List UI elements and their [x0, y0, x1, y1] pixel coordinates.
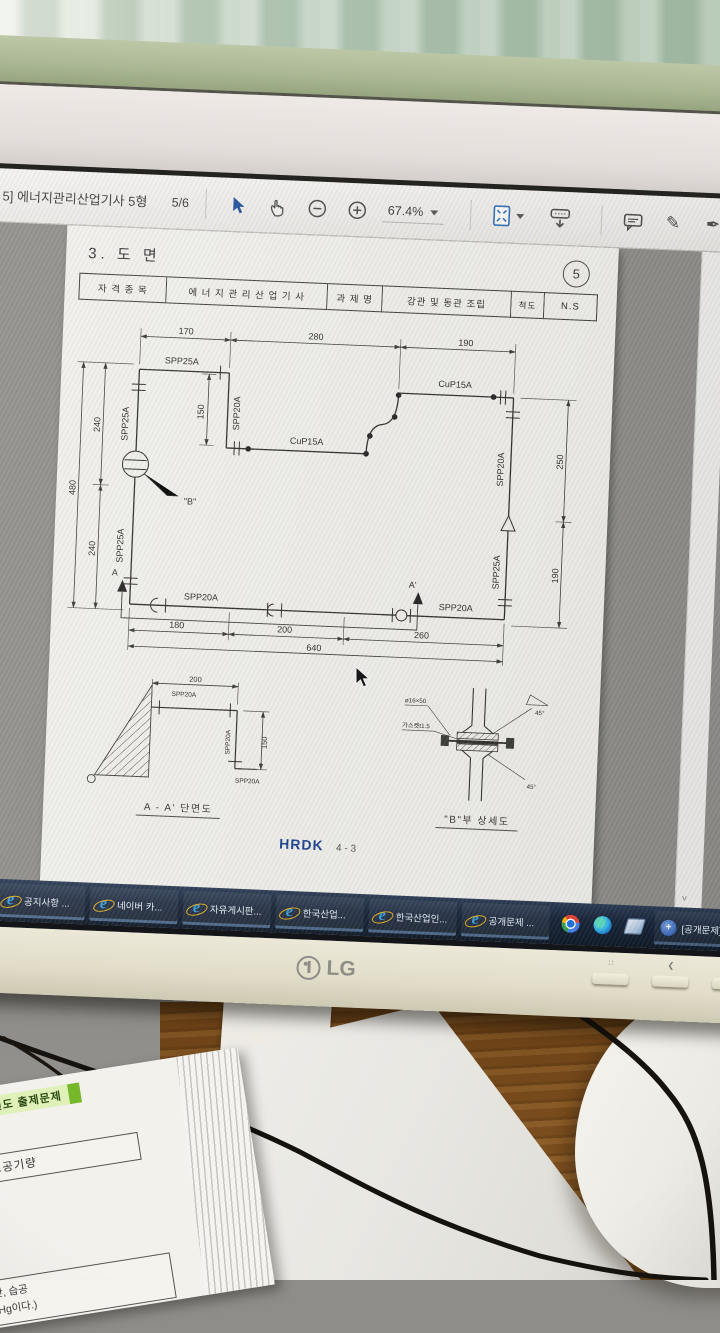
sign-icon[interactable]: ✒ [697, 209, 720, 240]
table-cell-label: 척도 [511, 291, 545, 319]
pipe-label: SPP25A [119, 406, 130, 440]
dim-label: 250 [555, 454, 566, 469]
pdf-document-title: 5] 에너지관리산업기사 5형 [2, 185, 158, 210]
chrome-icon[interactable] [561, 914, 580, 933]
pipe-label: SPP25A [491, 555, 502, 589]
hand-tool-icon[interactable] [261, 191, 292, 222]
chevron-right-icon: ❯ [713, 963, 720, 974]
pipe-label: SPP20A [171, 691, 197, 699]
dim-label: 150 [195, 404, 206, 419]
table-cell-value: 강관 및 동관 조립 [382, 285, 512, 317]
piping-diagram: 170 280 190 480 240 240 150 250 190 180 … [57, 311, 615, 683]
select-tool-icon[interactable] [221, 189, 252, 220]
pipe-label: SPP20A [235, 778, 261, 786]
toolbar-divider [600, 205, 602, 235]
pipe-label: SPP20A [439, 602, 473, 613]
dim-label: 260 [414, 630, 429, 641]
pipe-lines [149, 707, 259, 769]
taskbar-item-hrdk2[interactable]: e 한국산업인... [368, 898, 457, 936]
pipe-lines [130, 369, 515, 619]
pipe-label: SPP25A [114, 528, 125, 562]
detail-callout-label: "B" [184, 496, 197, 507]
table-cell-value: N.S [544, 292, 598, 321]
book-badge: 과년도 출제문제 [0, 1082, 82, 1119]
angle-label: 45° [535, 710, 545, 717]
internet-explorer-icon: e [95, 895, 113, 913]
monitor-right-button[interactable]: ❯ [712, 963, 720, 990]
pipe-label: CuP15A [290, 436, 324, 447]
drawing-page-number: 4 - 3 [336, 843, 356, 855]
scroll-down-icon[interactable]: ˅ [682, 893, 688, 903]
internet-explorer-icon: e [466, 911, 484, 929]
toolbar-divider [470, 199, 472, 229]
internet-explorer-icon: e [373, 907, 391, 925]
monitor-left-button[interactable]: ❮ [652, 960, 689, 987]
pipe-label: SPP20A [231, 396, 242, 430]
extension-lines [66, 326, 579, 669]
lg-brand-text: LG [326, 957, 356, 982]
drawing-footer: HRDK 4 - 3 [41, 826, 593, 867]
taskbar-item-label: 한국산업... [303, 906, 346, 922]
monitor-controls: ∷ ❮ ❯ ○ [592, 958, 720, 993]
lg-logo: LG [296, 955, 356, 981]
taskbar-item-label: 공지사항 ... [24, 894, 70, 910]
dim-label: 190 [458, 338, 473, 349]
dim-label: 190 [550, 568, 561, 583]
dimension-lines [149, 679, 270, 770]
internet-explorer-icon: e [188, 899, 206, 917]
pipe-fittings [116, 362, 521, 627]
internet-explorer-icon: e [280, 903, 298, 921]
section-label: A [112, 567, 118, 577]
chevron-down-icon [430, 210, 438, 215]
pipe-label: CuP15A [438, 379, 472, 390]
edge-icon[interactable] [593, 916, 612, 935]
lg-monitor: 5] 에너지관리산업기사 5형 5/6 67.4% [0, 33, 720, 1027]
highlight-icon[interactable]: ✎ [657, 207, 688, 238]
dim-label: 150 [260, 736, 270, 749]
zoom-level-dropdown[interactable]: 67.4% [381, 199, 444, 225]
flange-detail-b: ø16×50 가스켓t1.5 45° 45° "B"부 상세도 [387, 681, 573, 833]
page-indicator: 5/6 [171, 195, 189, 210]
dim-label: 170 [178, 326, 193, 337]
pipe-label: SPP25A [165, 355, 199, 366]
dim-label: 240 [92, 417, 103, 432]
dim-label: 200 [189, 675, 202, 685]
taskbar-item-hrdk1[interactable]: e 한국산업... [275, 894, 364, 932]
page-fit-icon[interactable] [487, 200, 530, 232]
taskbar-item-label: 자유게시판... [210, 902, 262, 918]
chevron-left-icon: ❮ [653, 960, 689, 971]
taskbar-item-notice[interactable]: e 공지사항 ... [0, 883, 86, 921]
dim-label: 280 [308, 331, 323, 342]
dim-label: 200 [277, 624, 292, 635]
lg-symbol-icon [296, 955, 321, 980]
toolbar-download-icon[interactable] [545, 203, 576, 234]
pdf-page: 3. 도 면 5 자 격 종 목 에 너 지 관 리 산 업 기 사 과 제 명… [40, 225, 619, 908]
zoom-level-value: 67.4% [388, 204, 424, 219]
dim-label: 240 [87, 541, 98, 556]
taskbar-item-naver-cafe[interactable]: e 네이버 카... [89, 887, 178, 925]
notes-app-icon[interactable] [623, 918, 646, 935]
table-cell-label: 자 격 종 목 [78, 273, 167, 304]
bolt-label: ø16×50 [405, 697, 427, 705]
angle-label: 45° [526, 784, 536, 791]
zoom-in-icon[interactable] [341, 194, 372, 225]
dim-label: 180 [169, 620, 184, 631]
pipe-label: SPP20A [224, 729, 232, 755]
taskbar-item-board[interactable]: e 자유게시판... [182, 891, 271, 929]
toolbar-divider [204, 188, 206, 218]
section-detail-a: 200 SPP20A 150 SPP20A SPP20A A - A' 단면도 [83, 668, 279, 821]
pdf-scrollbar[interactable]: ˅ [674, 252, 720, 909]
taskbar-item-label: 네이버 카... [117, 898, 163, 914]
wall-section [87, 683, 152, 785]
app-icon: + [660, 920, 677, 937]
taskbar-item-open-question-file[interactable]: + [공개문제]... [654, 910, 720, 947]
chevron-down-icon [516, 214, 524, 219]
taskbar-item-label: 공개문제 ... [488, 913, 534, 929]
menu-grid-icon: ∷ [593, 958, 629, 969]
dimension-lines [72, 334, 571, 664]
pipe-label: SPP20A [184, 591, 218, 602]
table-cell-value: 에 너 지 관 리 산 업 기 사 [166, 276, 328, 310]
gasket-label: 가스켓t1.5 [402, 720, 431, 730]
pdf-content-area: 3. 도 면 5 자 격 종 목 에 너 지 관 리 산 업 기 사 과 제 명… [0, 220, 720, 910]
book-question-box: 하시오.(단, 습공 9.82mmHg이다.) [0, 1252, 177, 1332]
monitor-screen: 5] 에너지관리산업기사 5형 5/6 67.4% [0, 166, 720, 958]
comment-icon[interactable] [617, 206, 648, 237]
dim-label: 480 [67, 480, 78, 495]
taskbar-item-open-questions[interactable]: e 공개문제 ... [461, 902, 550, 940]
detail-b-title: "B"부 상세도 [436, 808, 518, 831]
zoom-out-icon[interactable] [301, 192, 332, 223]
hrdk-logo: HRDK [279, 836, 324, 854]
monitor-menu-button[interactable]: ∷ [592, 958, 629, 985]
pipe-label: SPP20A [495, 452, 506, 486]
taskbar-item-label: [공개문제]... [681, 921, 720, 937]
table-cell-label: 과 제 명 [327, 283, 383, 312]
detail-a-title: A - A' 단면도 [136, 795, 221, 819]
study-book: 과년도 출제문제 필요한 소요공기량 +2H₂O 하시오.(단, 습공 9.82… [0, 1047, 275, 1333]
taskbar-item-label: 한국산업인... [395, 909, 447, 925]
book-highlight-box: 필요한 소요공기량 [0, 1132, 142, 1193]
dim-label: 640 [306, 642, 321, 653]
section-label: A' [409, 580, 417, 590]
internet-explorer-icon: e [2, 891, 20, 909]
